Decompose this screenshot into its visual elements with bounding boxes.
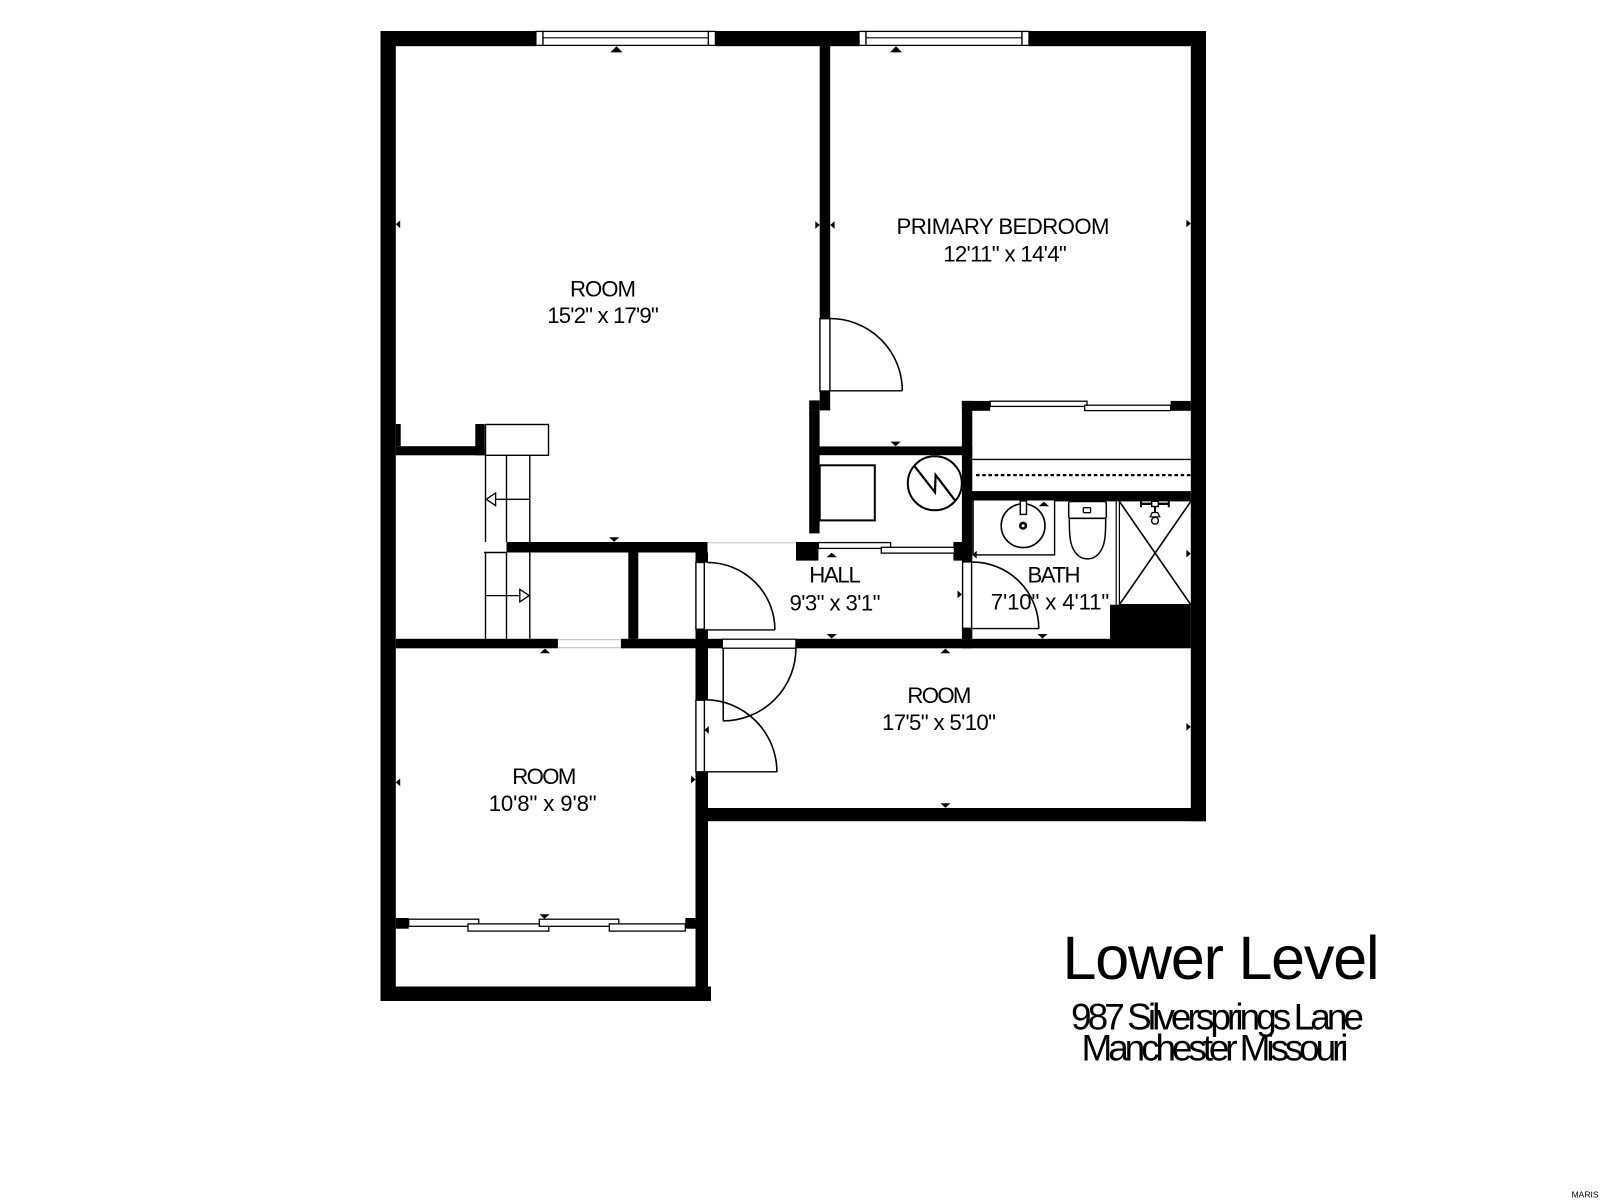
svg-text:ROOM: ROOM [512,764,576,789]
svg-text:7'10" x 4'11": 7'10" x 4'11" [991,590,1110,615]
svg-text:Lower Level: Lower Level [1063,924,1380,992]
svg-text:12'11" x 14'4": 12'11" x 14'4" [943,242,1067,267]
svg-text:17'5" x 5'10": 17'5" x 5'10" [882,710,996,735]
svg-text:15'2" x 17'9": 15'2" x 17'9" [547,303,659,328]
svg-text:ROOM: ROOM [907,683,971,708]
svg-text:BATH: BATH [1028,563,1081,588]
svg-text:MARIS: MARIS [1572,1190,1599,1200]
svg-text:10'8" x 9'8": 10'8" x 9'8" [489,791,597,816]
svg-text:ROOM: ROOM [570,277,636,302]
svg-text:PRIMARY BEDROOM: PRIMARY BEDROOM [897,214,1110,239]
svg-text:9'3" x 3'1": 9'3" x 3'1" [790,591,881,616]
svg-text:Manchester Missouri: Manchester Missouri [1082,1028,1349,1069]
svg-text:HALL: HALL [809,563,861,588]
